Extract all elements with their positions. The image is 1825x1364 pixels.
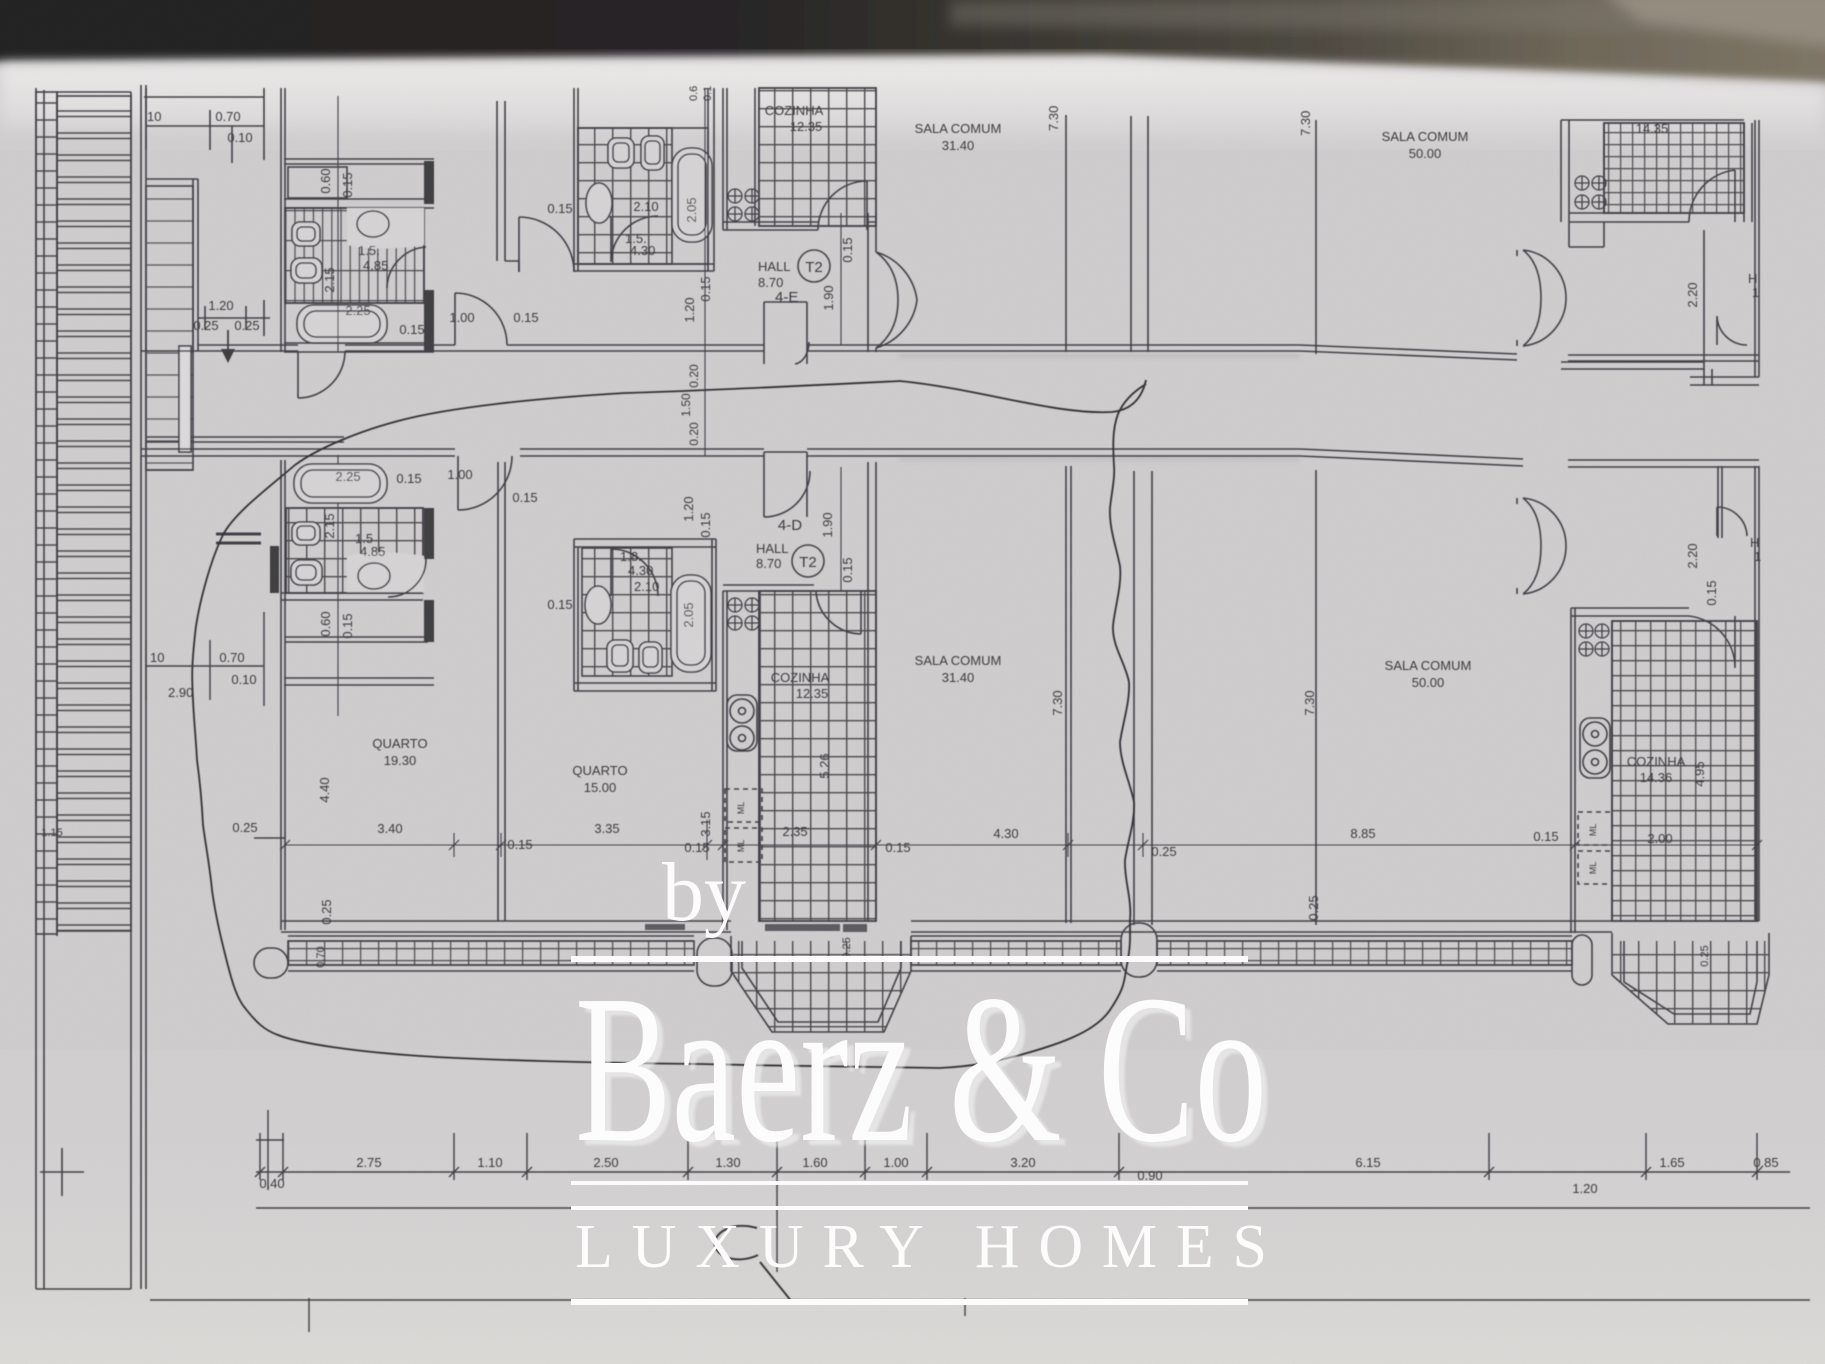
svg-text:by: by: [662, 846, 746, 939]
svg-text:Baerz & Co: Baerz & Co: [575, 951, 1267, 1186]
